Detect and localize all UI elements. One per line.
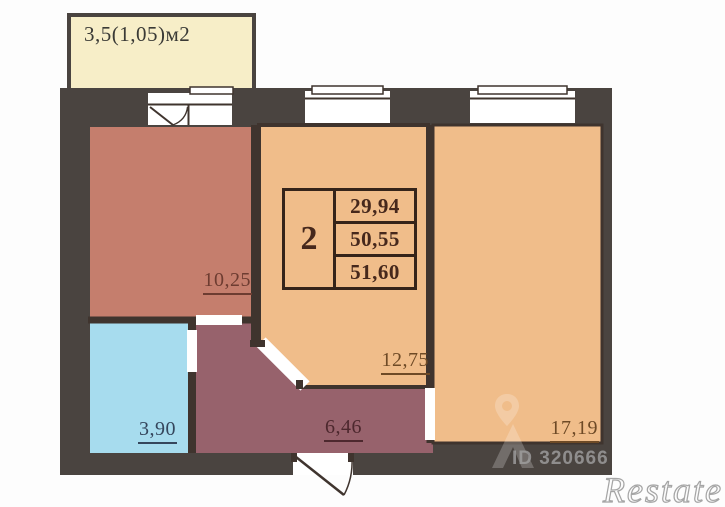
diagonal-wall-stub-bottom	[296, 380, 303, 389]
window-middle-sill	[312, 86, 383, 94]
brand-watermark: Restate	[603, 469, 723, 507]
entrance-opening	[293, 453, 353, 475]
window-right-opening	[470, 91, 575, 123]
entrance-jamb-right	[348, 453, 354, 462]
balcony-window-sill	[190, 87, 233, 94]
room-left-area-value: 10,25	[203, 269, 253, 295]
balcony-area-label: 3,5(1,05)м2	[84, 22, 190, 47]
door-opening-room-right	[425, 388, 435, 440]
bathroom-area-label: 3,90	[113, 418, 177, 444]
floorplan-canvas: 3,5(1,05)м2 2 29,94 50,55 51,60 10,25 12…	[0, 0, 725, 507]
room-middle-area-label: 12,75	[366, 349, 430, 375]
room-right-area-label: 17,19	[535, 417, 599, 443]
total-area-value: 50,55	[336, 221, 414, 254]
door-opening-room-left	[196, 315, 242, 325]
window-right-sill	[478, 86, 567, 94]
room-left-area-label: 10,25	[188, 269, 252, 295]
room-right-floor	[433, 125, 602, 443]
window-middle-opening	[305, 91, 390, 123]
apartment-info-table: 2 29,94 50,55 51,60	[282, 188, 417, 290]
door-opening-bathroom	[187, 330, 197, 372]
living-area-value: 29,94	[336, 191, 414, 221]
rooms-count: 2	[285, 191, 336, 287]
room-right-area-value: 17,19	[550, 417, 600, 443]
diagonal-wall-stub-top	[250, 340, 265, 347]
listing-id-watermark: ID 320666	[512, 448, 609, 470]
hallway-area-label: 6,46	[299, 416, 363, 442]
total-area-with-balcony-value: 51,60	[336, 254, 414, 287]
bathroom-area-value: 3,90	[138, 418, 177, 444]
room-middle-area-value: 12,75	[381, 349, 431, 375]
areas-column: 29,94 50,55 51,60	[336, 191, 414, 287]
balcony-door-window-opening	[148, 93, 232, 125]
hallway-area-value: 6,46	[324, 416, 363, 442]
